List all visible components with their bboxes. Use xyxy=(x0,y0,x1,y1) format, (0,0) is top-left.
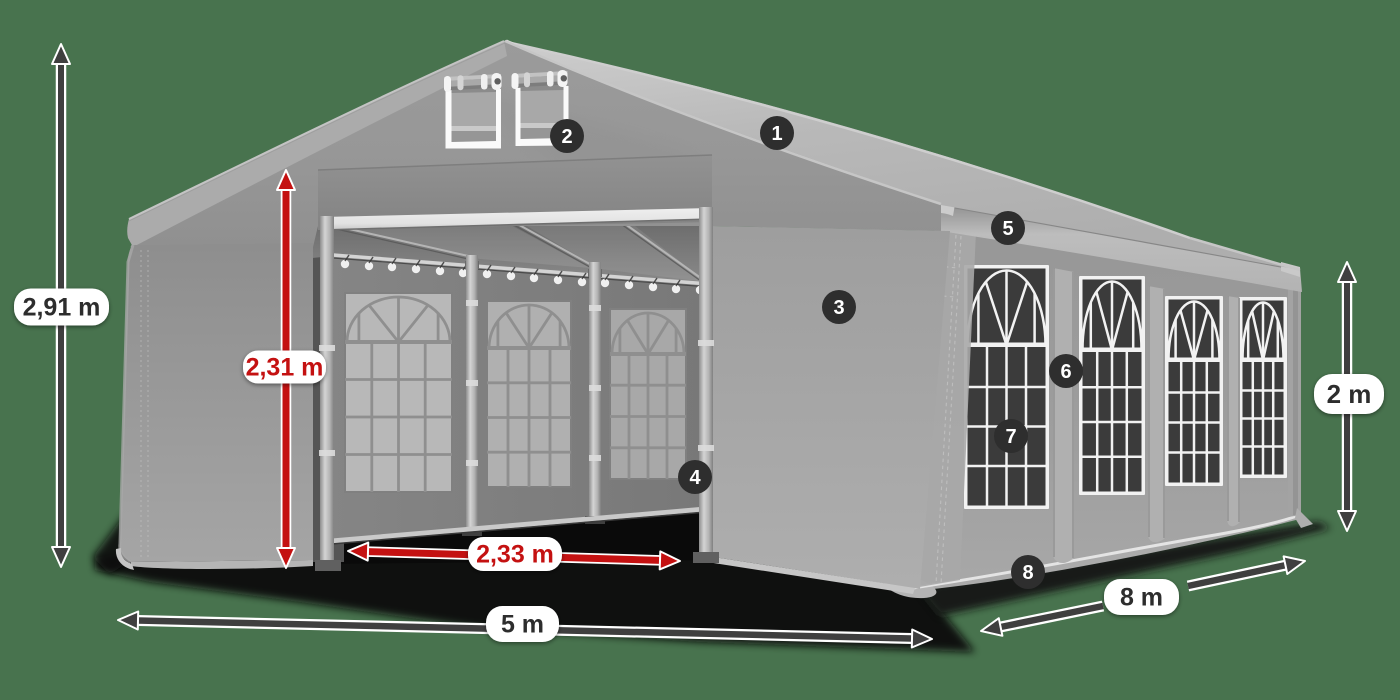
svg-text:2: 2 xyxy=(561,126,572,148)
svg-text:7: 7 xyxy=(1005,426,1016,448)
svg-text:2,31 m: 2,31 m xyxy=(246,354,324,382)
svg-text:1: 1 xyxy=(771,123,782,145)
svg-text:8: 8 xyxy=(1022,562,1033,584)
svg-text:8 m: 8 m xyxy=(1120,584,1163,612)
svg-text:3: 3 xyxy=(833,297,844,319)
svg-text:5: 5 xyxy=(1002,218,1013,240)
svg-text:4: 4 xyxy=(689,467,701,489)
svg-text:2 m: 2 m xyxy=(1327,379,1372,409)
svg-text:2,91 m: 2,91 m xyxy=(23,294,101,322)
svg-text:6: 6 xyxy=(1060,361,1071,383)
svg-text:2,33 m: 2,33 m xyxy=(476,541,554,569)
svg-text:5 m: 5 m xyxy=(501,611,544,639)
